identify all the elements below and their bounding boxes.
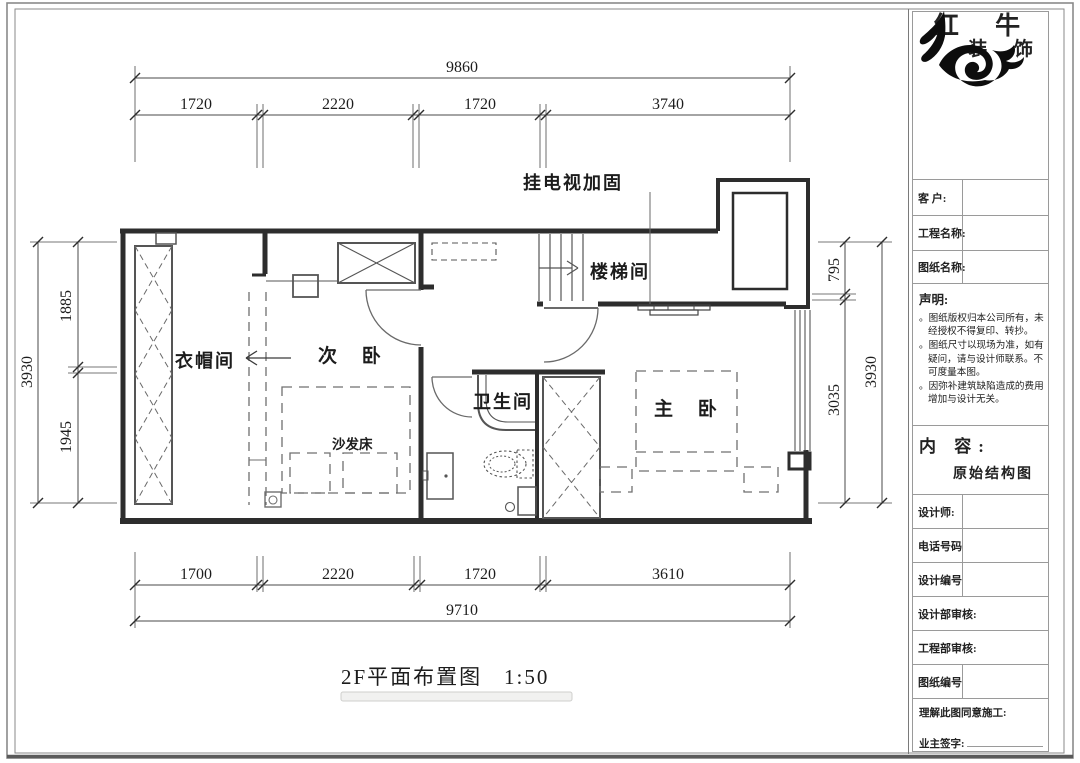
phone-label: 电话号码 [913,538,962,554]
row-designer: 设计师: [913,495,1048,529]
furniture [282,371,778,493]
project-label: 工程名称: [913,225,966,241]
row-sheet-no: 图纸编号 [913,665,1048,699]
owner-sign-label: 业主签字: [919,739,965,750]
window [795,310,810,451]
bull-logo-icon [909,9,1027,95]
dim-top-seg2: 2220 [322,96,354,113]
stairs [539,234,583,301]
row-project: 工程名称: [913,216,1048,251]
small-cabinet [293,275,318,297]
customer-label: 客 户: [913,190,946,206]
nightstand-left [600,467,632,492]
dim-top-total: 9860 [446,59,478,76]
wardrobes [135,233,600,518]
dim-right-seg2: 3035 [826,384,843,416]
dim-left-seg1: 1885 [58,290,75,322]
dim-bottom-seg2: 2220 [322,566,354,583]
dim-bottom-seg3: 1720 [464,566,496,583]
cased-opening [246,292,291,507]
eng-dept-label: 工程部审核: [913,640,977,656]
drawing-scale: 1:50 [504,665,549,689]
opening-above [432,243,496,260]
dim-top-seg4: 3740 [652,96,684,113]
room-label-second-bedroom: 次 卧 [318,344,391,367]
dim-right-seg1: 795 [826,258,843,282]
designer-label: 设计师: [913,504,955,520]
row-design-no: 设计编号 [913,563,1048,597]
door-second-bedroom [366,290,421,345]
statement-heading: 声明: [919,289,1044,308]
row-eng-dept: 工程部审核: [913,631,1048,665]
sheet-name-label: 图纸名称: [913,259,966,275]
title-block: 红 牛 装 饰 客 户: 工程名称: 图纸名称: 声明: 。图纸版权归本公司所有… [908,9,1051,754]
label-tv-annotation: 挂电视加固 [523,172,623,193]
drawing-sheet: 9860 1720 2220 1720 3740 1700 2220 1720 … [0,0,1080,763]
dim-left-seg2: 1945 [58,421,75,453]
dim-bottom-total: 9710 [446,602,478,619]
design-dept-label: 设计部审核: [913,606,977,622]
logo-area: 红 牛 装 饰 [913,12,1048,180]
room-label-bathroom: 卫生间 [473,391,533,412]
title-underbar [341,692,572,701]
row-phone: 电话号码 [913,529,1048,563]
dim-top-seg3: 1720 [464,96,496,113]
washbasin [427,453,453,499]
row-design-dept: 设计部审核: [913,597,1048,631]
toilet [484,451,526,477]
row-customer: 客 户: [913,180,1048,216]
design-no-label: 设计编号 [913,572,962,588]
dim-ticks [130,73,795,120]
tv-mount [638,192,710,315]
room-label-cloakroom: 衣帽间 [175,350,235,371]
dim-top-seg1: 1720 [180,96,212,113]
cloakroom-arrow [246,351,291,365]
door-master-bedroom [544,308,598,362]
door-bathroom [432,377,472,417]
statement-section: 声明: 。图纸版权归本公司所有，未经授权不得复印、转抄。 。图纸尺寸以现场为准，… [913,284,1048,426]
sheet-no-label: 图纸编号 [913,674,962,690]
dim-bottom-seg4: 3610 [652,566,684,583]
drawing-title: 2F平面布置图 [341,665,482,689]
content-section: 内 容: 原始结构图 [913,426,1048,495]
dim-top [130,66,795,168]
content-heading: 内 容: [919,432,1048,457]
room-label-master-bedroom: 主 卧 [654,398,727,420]
content-value: 原始结构图 [919,463,1048,483]
statement-line: 。图纸尺寸以现场为准，如有疑问，请与设计师联系。不可度量本图。 [919,339,1044,379]
label-sofa-bed: 沙发床 [332,436,373,452]
dim-left [30,237,117,508]
statement-line: 。图纸版权归本公司所有，未经授权不得复印、转抄。 [919,312,1044,338]
dim-left-total: 3930 [19,356,36,388]
room-label-stairwell: 楼梯间 [590,261,650,282]
nightstand-right [744,467,778,492]
dim-right [812,237,892,508]
dim-right-total: 3930 [863,356,880,388]
agree-label: 理解此图同意施工: [919,705,1044,720]
statement-line: 。因弥补建筑缺陷造成的费用增加与设计无关。 [919,380,1044,406]
signature-section: 理解此图同意施工: 业主签字: [913,699,1048,751]
owner-signature-field [967,736,1043,747]
dim-bottom-seg1: 1700 [180,566,212,583]
master-bed-outline [636,371,737,471]
master-wardrobe [543,377,600,518]
wall-box [156,233,176,244]
owner-sign-line: 业主签字: [919,736,1044,751]
cloakroom-wardrobe [135,246,172,504]
row-sheet-name: 图纸名称: [913,251,1048,284]
